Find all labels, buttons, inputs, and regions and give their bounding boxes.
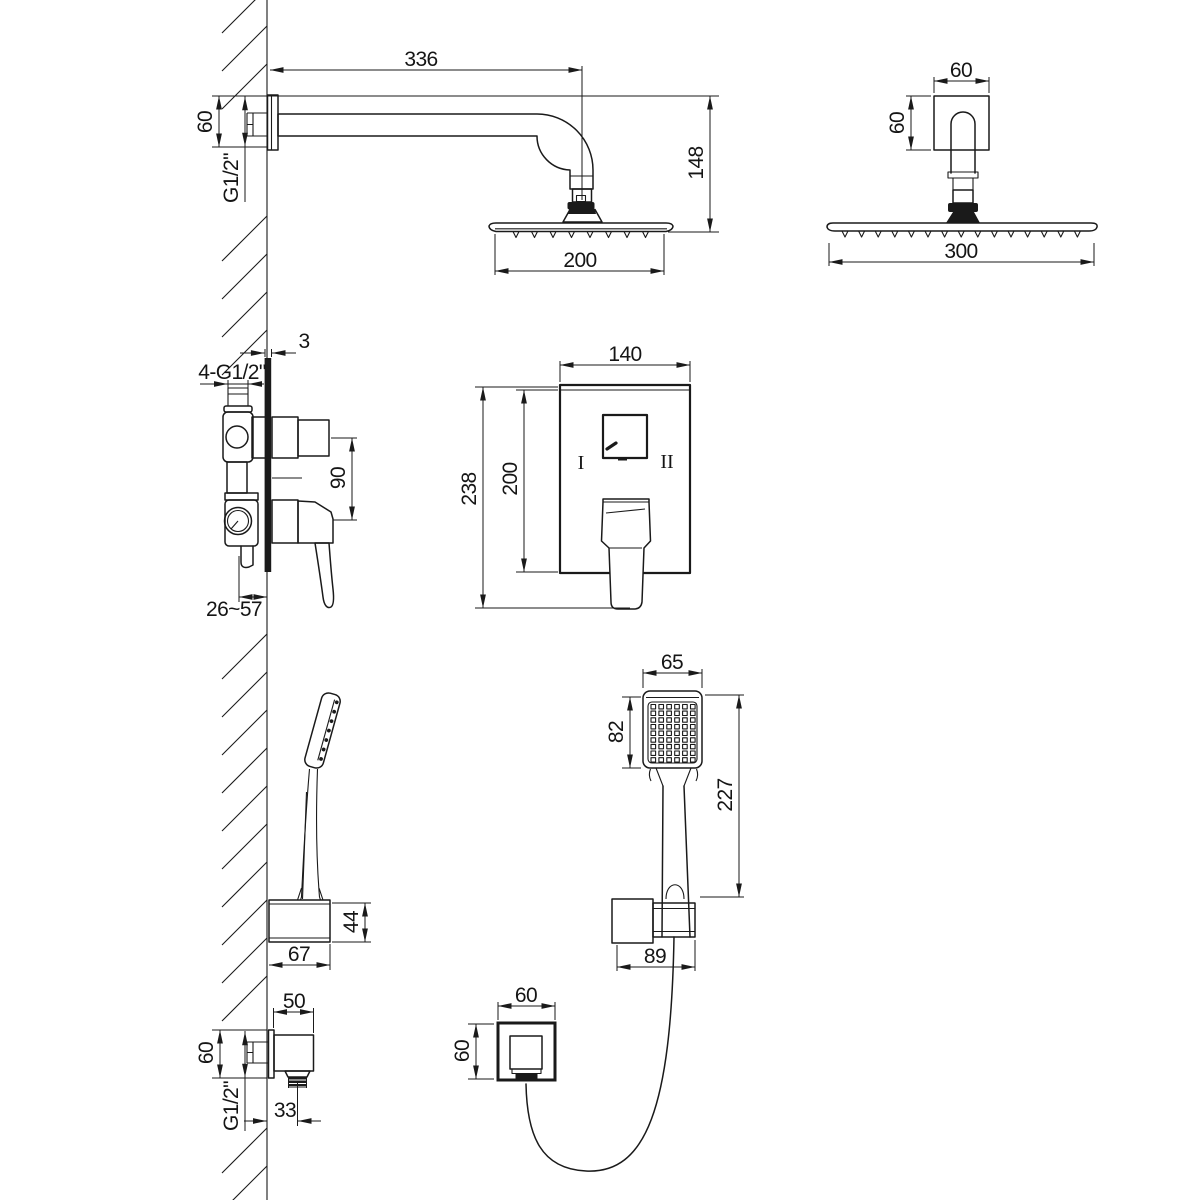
outlet-front-nipple [516,1074,538,1081]
ball-joint [568,202,595,210]
dim-arm-height: 148 [685,146,708,179]
label-position-2: II [660,451,673,473]
dim-head-width-side: 200 [563,249,596,272]
dim-trim-width: 140 [608,343,641,366]
dim-wall-plate-thickness: 3 [298,330,309,353]
dim-front-flange-height: 60 [886,112,909,134]
dim-holder-width: 89 [644,945,666,968]
background [0,0,1200,1200]
front-ball-joint [948,203,978,212]
dim-front-head-width: 300 [944,240,977,263]
dim-handshower-head-width: 65 [661,651,683,674]
label-position-1: I [578,452,585,474]
dim-bracket-depth: 67 [288,943,310,966]
dim-front-flange-width: 60 [950,59,972,82]
dim-arm-length: 336 [404,48,437,71]
dim-outlet-front-height: 60 [451,1040,474,1062]
label-inlet-thread: 4-G1/2" [198,361,266,384]
dim-outlet-height: 60 [195,1042,218,1064]
dim-outlet-front-width: 60 [515,984,537,1007]
technical-drawing: 336 60 G1/2" 148 200 [0,0,1200,1200]
dim-handshower-face-height: 82 [605,721,628,743]
dim-install-depth: 26~57 [206,598,262,621]
dim-trim-plate-height: 200 [499,462,522,495]
drawing-page: 336 60 G1/2" 148 200 [0,0,1200,1200]
outlet-front-plate [498,1023,555,1080]
label-outlet-thread: G1/2" [220,1081,243,1131]
dim-arm-flange: 60 [194,111,217,133]
dim-port-spacing: 90 [327,467,350,489]
dim-outlet-offset: 33 [274,1099,296,1122]
dim-trim-total-height: 238 [458,472,481,505]
wall-plate-section [265,358,272,572]
dim-handshower-length: 227 [714,778,737,811]
dim-bracket-height: 44 [340,910,363,933]
dim-outlet-depth: 50 [283,990,305,1013]
label-arm-thread: G1/2" [220,153,243,203]
